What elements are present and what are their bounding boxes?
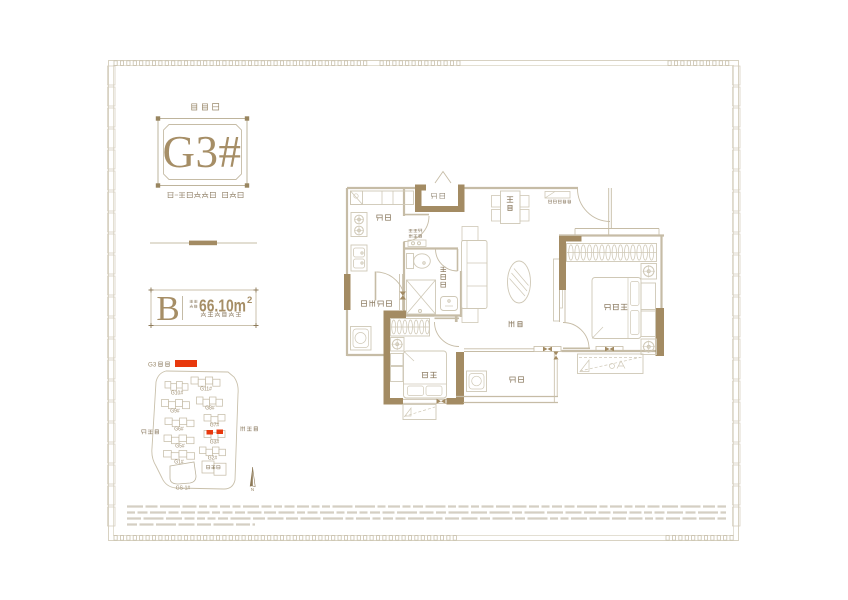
svg-text:G5#: G5# xyxy=(175,444,185,450)
svg-text:N: N xyxy=(251,487,254,492)
svg-text:G6#: G6# xyxy=(174,427,184,433)
svg-text:G11#: G11# xyxy=(200,387,212,393)
svg-text:G3: G3 xyxy=(148,362,157,369)
svg-text:G2#: G2# xyxy=(208,456,218,462)
svg-text:2: 2 xyxy=(247,295,252,306)
svg-text:B: B xyxy=(156,289,179,328)
svg-text:GS-1#: GS-1# xyxy=(176,486,191,492)
svg-text:G7#: G7# xyxy=(210,423,220,429)
svg-text:G10#: G10# xyxy=(171,391,183,397)
svg-text:G3#: G3# xyxy=(163,127,242,177)
svg-text:G3#: G3# xyxy=(210,440,220,446)
svg-text:G8#: G8# xyxy=(205,406,215,412)
svg-text:G9#: G9# xyxy=(170,409,180,415)
